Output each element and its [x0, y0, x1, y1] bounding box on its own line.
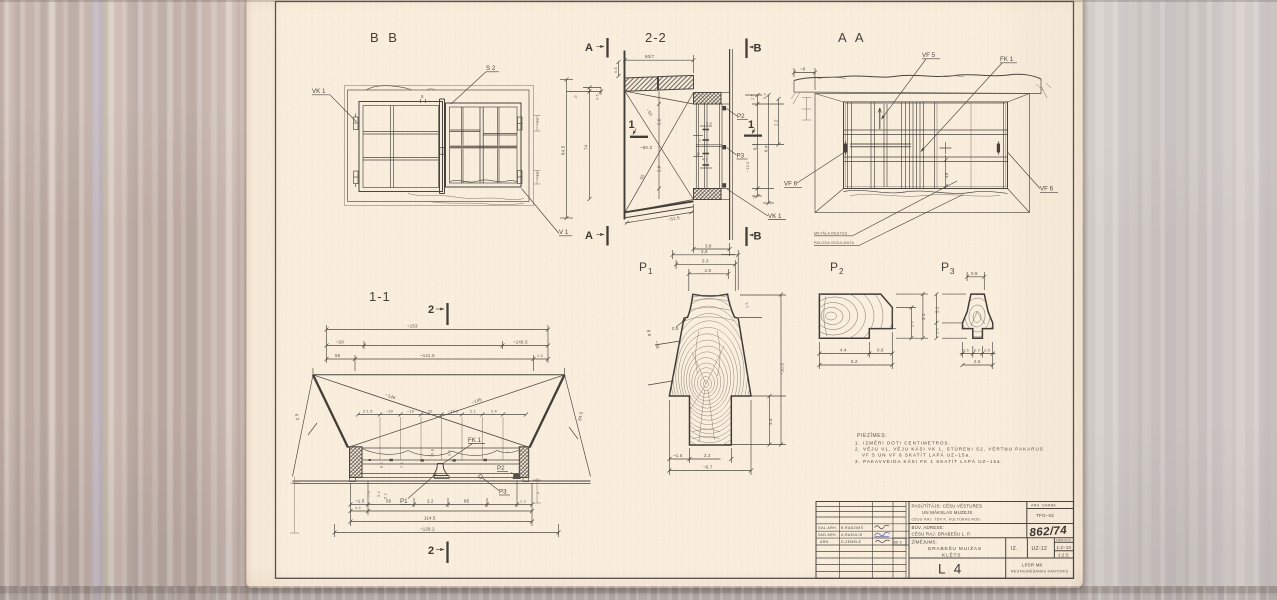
- svg-text:2.0: 2.0: [657, 118, 662, 125]
- svg-text:4.4: 4.4: [355, 506, 361, 510]
- svg-text:0.5: 0.5: [963, 349, 969, 353]
- svg-text:ARH. DARBA: ARH. DARBA: [1031, 504, 1056, 508]
- svg-text:P2: P2: [497, 465, 505, 472]
- svg-text:~10: ~10: [536, 172, 540, 179]
- svg-text:ARH.: ARH.: [820, 540, 830, 544]
- svg-text:~19.2: ~19.2: [448, 410, 459, 414]
- svg-text:~20: ~20: [336, 340, 344, 345]
- svg-text:3.4: 3.4: [377, 491, 381, 497]
- svg-text:~153: ~153: [407, 324, 418, 329]
- svg-text:Ɲ: Ɲ: [696, 152, 700, 156]
- svg-text:8.4: 8.4: [764, 145, 769, 152]
- svg-text:2.4: 2.4: [491, 410, 497, 414]
- svg-text:P3: P3: [499, 489, 507, 496]
- svg-text:8.1: 8.1: [753, 143, 758, 150]
- svg-text:RESTAURĒŠANAS KANTORIS: RESTAURĒŠANAS KANTORIS: [1011, 569, 1069, 574]
- svg-text:A A: A A: [838, 30, 867, 45]
- svg-text:P: P: [830, 260, 838, 274]
- svg-text:3. PAKAVVEIDA KĀSI FK 1 SKA: 3. PAKAVVEIDA KĀSI FK 1 SKATĪT LAPĀ UZ–1…: [855, 458, 1003, 464]
- svg-text:59: 59: [335, 353, 341, 358]
- svg-text:METĀLA RESTES: METĀLA RESTES: [814, 232, 848, 236]
- svg-text:3.3: 3.3: [702, 259, 709, 264]
- svg-text:20: 20: [428, 410, 433, 414]
- svg-text:TFG–02: TFG–02: [1036, 513, 1054, 518]
- svg-text:A: A: [585, 230, 593, 242]
- svg-text:~10: ~10: [407, 410, 414, 414]
- svg-text:7.4: 7.4: [367, 491, 371, 497]
- svg-text:2.2: 2.2: [704, 453, 711, 458]
- svg-text:50: 50: [386, 499, 392, 504]
- svg-text:D.ZEMELE: D.ZEMELE: [841, 540, 862, 544]
- svg-text:V 1: V 1: [559, 229, 569, 236]
- svg-text:2.1: 2.1: [470, 410, 476, 414]
- svg-text:P: P: [941, 260, 949, 274]
- svg-text:7: 7: [753, 196, 755, 200]
- svg-text:5.1: 5.1: [935, 306, 940, 313]
- svg-text:A.RAKULIS: A.RAKULIS: [841, 533, 863, 537]
- svg-text:4.5: 4.5: [596, 94, 600, 100]
- svg-text:74: 74: [584, 144, 589, 150]
- svg-text:0.9: 0.9: [971, 271, 978, 276]
- svg-text:A: A: [585, 42, 593, 54]
- svg-text:PALODA IEGULMATA: PALODA IEGULMATA: [814, 241, 854, 245]
- svg-text:-9: -9: [574, 95, 578, 99]
- svg-text:2.2: 2.2: [773, 119, 778, 126]
- svg-text:~1.5: ~1.5: [673, 453, 683, 458]
- svg-text:2: 2: [699, 139, 701, 143]
- svg-text:P1: P1: [400, 498, 408, 505]
- svg-text:~129.2: ~129.2: [420, 527, 435, 532]
- svg-text:3: 3: [950, 267, 955, 276]
- svg-text:2.0: 2.0: [657, 165, 662, 172]
- svg-text:~8: ~8: [800, 67, 806, 72]
- svg-text:~10.5: ~10.5: [780, 363, 785, 375]
- svg-text:~5.7: ~5.7: [703, 465, 713, 470]
- svg-text:VF 5 UN VF 6 SKATĪT LAPĀ: VF 5 UN VF 6 SKATĪT LAPĀ UZ–15a.: [862, 452, 971, 458]
- svg-text:B: B: [754, 43, 762, 55]
- svg-text:3.3: 3.3: [448, 450, 452, 456]
- svg-text:114.5: 114.5: [424, 516, 436, 521]
- svg-text:1-1: 1-1: [369, 289, 391, 304]
- svg-text:2.2: 2.2: [427, 499, 434, 504]
- svg-text:LPSR MK: LPSR MK: [1022, 563, 1043, 568]
- svg-text:B: B: [754, 231, 762, 243]
- svg-text:B.RADZIMŠ: B.RADZIMŠ: [841, 525, 864, 530]
- svg-text:5: 5: [421, 94, 424, 99]
- svg-text:3.1: 3.1: [921, 313, 926, 320]
- svg-text:2. VĒJU V1, VĒJU KĀSI VK 1,: 2. VĒJU V1, VĒJU KĀSI VK 1, STŪREŅI S2, …: [855, 446, 1044, 452]
- svg-text:~20: ~20: [386, 410, 393, 414]
- svg-text:2.5: 2.5: [974, 359, 981, 364]
- svg-text:VF 6: VF 6: [1040, 186, 1054, 193]
- svg-text:3.5: 3.5: [768, 418, 773, 425]
- svg-text:B B: B B: [370, 30, 400, 45]
- svg-text:MĒROGS: MĒROGS: [1056, 538, 1071, 542]
- svg-text:~34: ~34: [536, 118, 540, 125]
- svg-text:1.5: 1.5: [751, 94, 755, 100]
- svg-text:4.4: 4.4: [840, 348, 847, 353]
- svg-text:P: P: [639, 260, 647, 274]
- svg-text:5.8: 5.8: [706, 122, 712, 126]
- svg-text:49: 49: [944, 172, 949, 178]
- svg-text:4.9: 4.9: [702, 158, 708, 162]
- svg-text:88 5: 88 5: [894, 541, 902, 545]
- svg-text:2: 2: [839, 267, 844, 276]
- svg-text:P2: P2: [737, 113, 745, 120]
- svg-text:IZ.: IZ.: [1011, 546, 1018, 552]
- svg-text:5.4: 5.4: [763, 93, 767, 99]
- svg-text:2: 2: [428, 545, 434, 557]
- svg-text:ZĪMĒJUMS:: ZĪMĒJUMS:: [912, 540, 937, 545]
- svg-text:2-1.5: 2-1.5: [363, 410, 373, 414]
- svg-text:VK 1: VK 1: [312, 88, 326, 95]
- svg-text:PASŪTĪTĀJS: CĒSU VĒSTURES: PASŪTĪTĀJS: CĒSU VĒSTURES: [912, 504, 983, 509]
- svg-text:0.5: 0.5: [985, 349, 991, 353]
- svg-text:~149.5: ~149.5: [513, 340, 528, 345]
- svg-text:0.9: 0.9: [974, 349, 980, 353]
- svg-text:~1.5: ~1.5: [355, 499, 365, 504]
- svg-text:VF 6: VF 6: [784, 181, 798, 188]
- svg-text:CĒSU RAJ. TDP K. KULTŪRAS NOD.: CĒSU RAJ. TDP K. KULTŪRAS NOD.: [912, 518, 982, 522]
- svg-text:1: 1: [629, 119, 635, 131]
- svg-text:BŪV. ADRESE:: BŪV. ADRESE:: [912, 525, 945, 530]
- svg-text:6.8: 6.8: [614, 67, 618, 73]
- svg-text:VAD.ARH.: VAD.ARH.: [818, 533, 837, 537]
- svg-text:5.2: 5.2: [851, 359, 858, 364]
- svg-text:85: 85: [464, 499, 470, 504]
- svg-text:~13.5: ~13.5: [746, 161, 750, 172]
- svg-text:2: 2: [428, 304, 434, 316]
- svg-text:GAL.ARH.: GAL.ARH.: [818, 526, 837, 530]
- svg-text:1: 1: [648, 267, 653, 276]
- svg-text:10.8: 10.8: [431, 449, 435, 457]
- svg-text:FK 1: FK 1: [1000, 56, 1014, 63]
- svg-text:3.6: 3.6: [936, 328, 940, 334]
- svg-text:1. IZMĒRI DOTI CENTIMETROS.: 1. IZMĒRI DOTI CENTIMETROS.: [855, 440, 951, 446]
- svg-text:P3: P3: [737, 153, 745, 160]
- svg-text:1: 1: [748, 119, 754, 131]
- svg-text:2.8: 2.8: [705, 268, 712, 273]
- svg-text:S 2: S 2: [486, 65, 496, 72]
- svg-text:1.3: 1.3: [520, 500, 526, 504]
- svg-text:2.4: 2.4: [911, 321, 915, 327]
- svg-text:0.8: 0.8: [877, 348, 884, 353]
- svg-text:VK 1: VK 1: [768, 213, 782, 220]
- svg-text:PIEZĪMES:: PIEZĪMES:: [857, 432, 887, 439]
- svg-text:UN MĀKSLAS MUZEJS: UN MĀKSLAS MUZEJS: [922, 510, 973, 515]
- svg-text:CĒSU RAJ. DRABEŠU L. P.: CĒSU RAJ. DRABEŠU L. P.: [912, 532, 972, 537]
- svg-text:80/7: 80/7: [645, 54, 655, 59]
- svg-text:3,8: 3,8: [705, 244, 712, 249]
- svg-text:3,8: 3,8: [701, 249, 708, 254]
- svg-text:~50.3: ~50.3: [640, 145, 652, 150]
- svg-text:UZ-12: UZ-12: [1032, 546, 1047, 552]
- svg-text:0.5: 0.5: [672, 326, 679, 331]
- svg-text:1:2.5: 1:2.5: [1058, 553, 1069, 558]
- svg-text:1.5: 1.5: [537, 354, 543, 358]
- svg-text:~141.5: ~141.5: [420, 353, 435, 358]
- svg-text:VF 5: VF 5: [922, 52, 936, 59]
- svg-text:4: 4: [537, 492, 541, 494]
- svg-text:L 4: L 4: [938, 562, 964, 577]
- svg-text:1:2–10: 1:2–10: [1057, 545, 1072, 550]
- svg-text:2-2: 2-2: [645, 30, 667, 45]
- svg-text:8.2: 8.2: [379, 462, 383, 468]
- svg-text:FK 1: FK 1: [468, 437, 482, 444]
- svg-text:7.2: 7.2: [400, 462, 404, 468]
- svg-text:KLĒTS: KLĒTS: [942, 552, 961, 559]
- svg-text:84.5: 84.5: [561, 145, 566, 155]
